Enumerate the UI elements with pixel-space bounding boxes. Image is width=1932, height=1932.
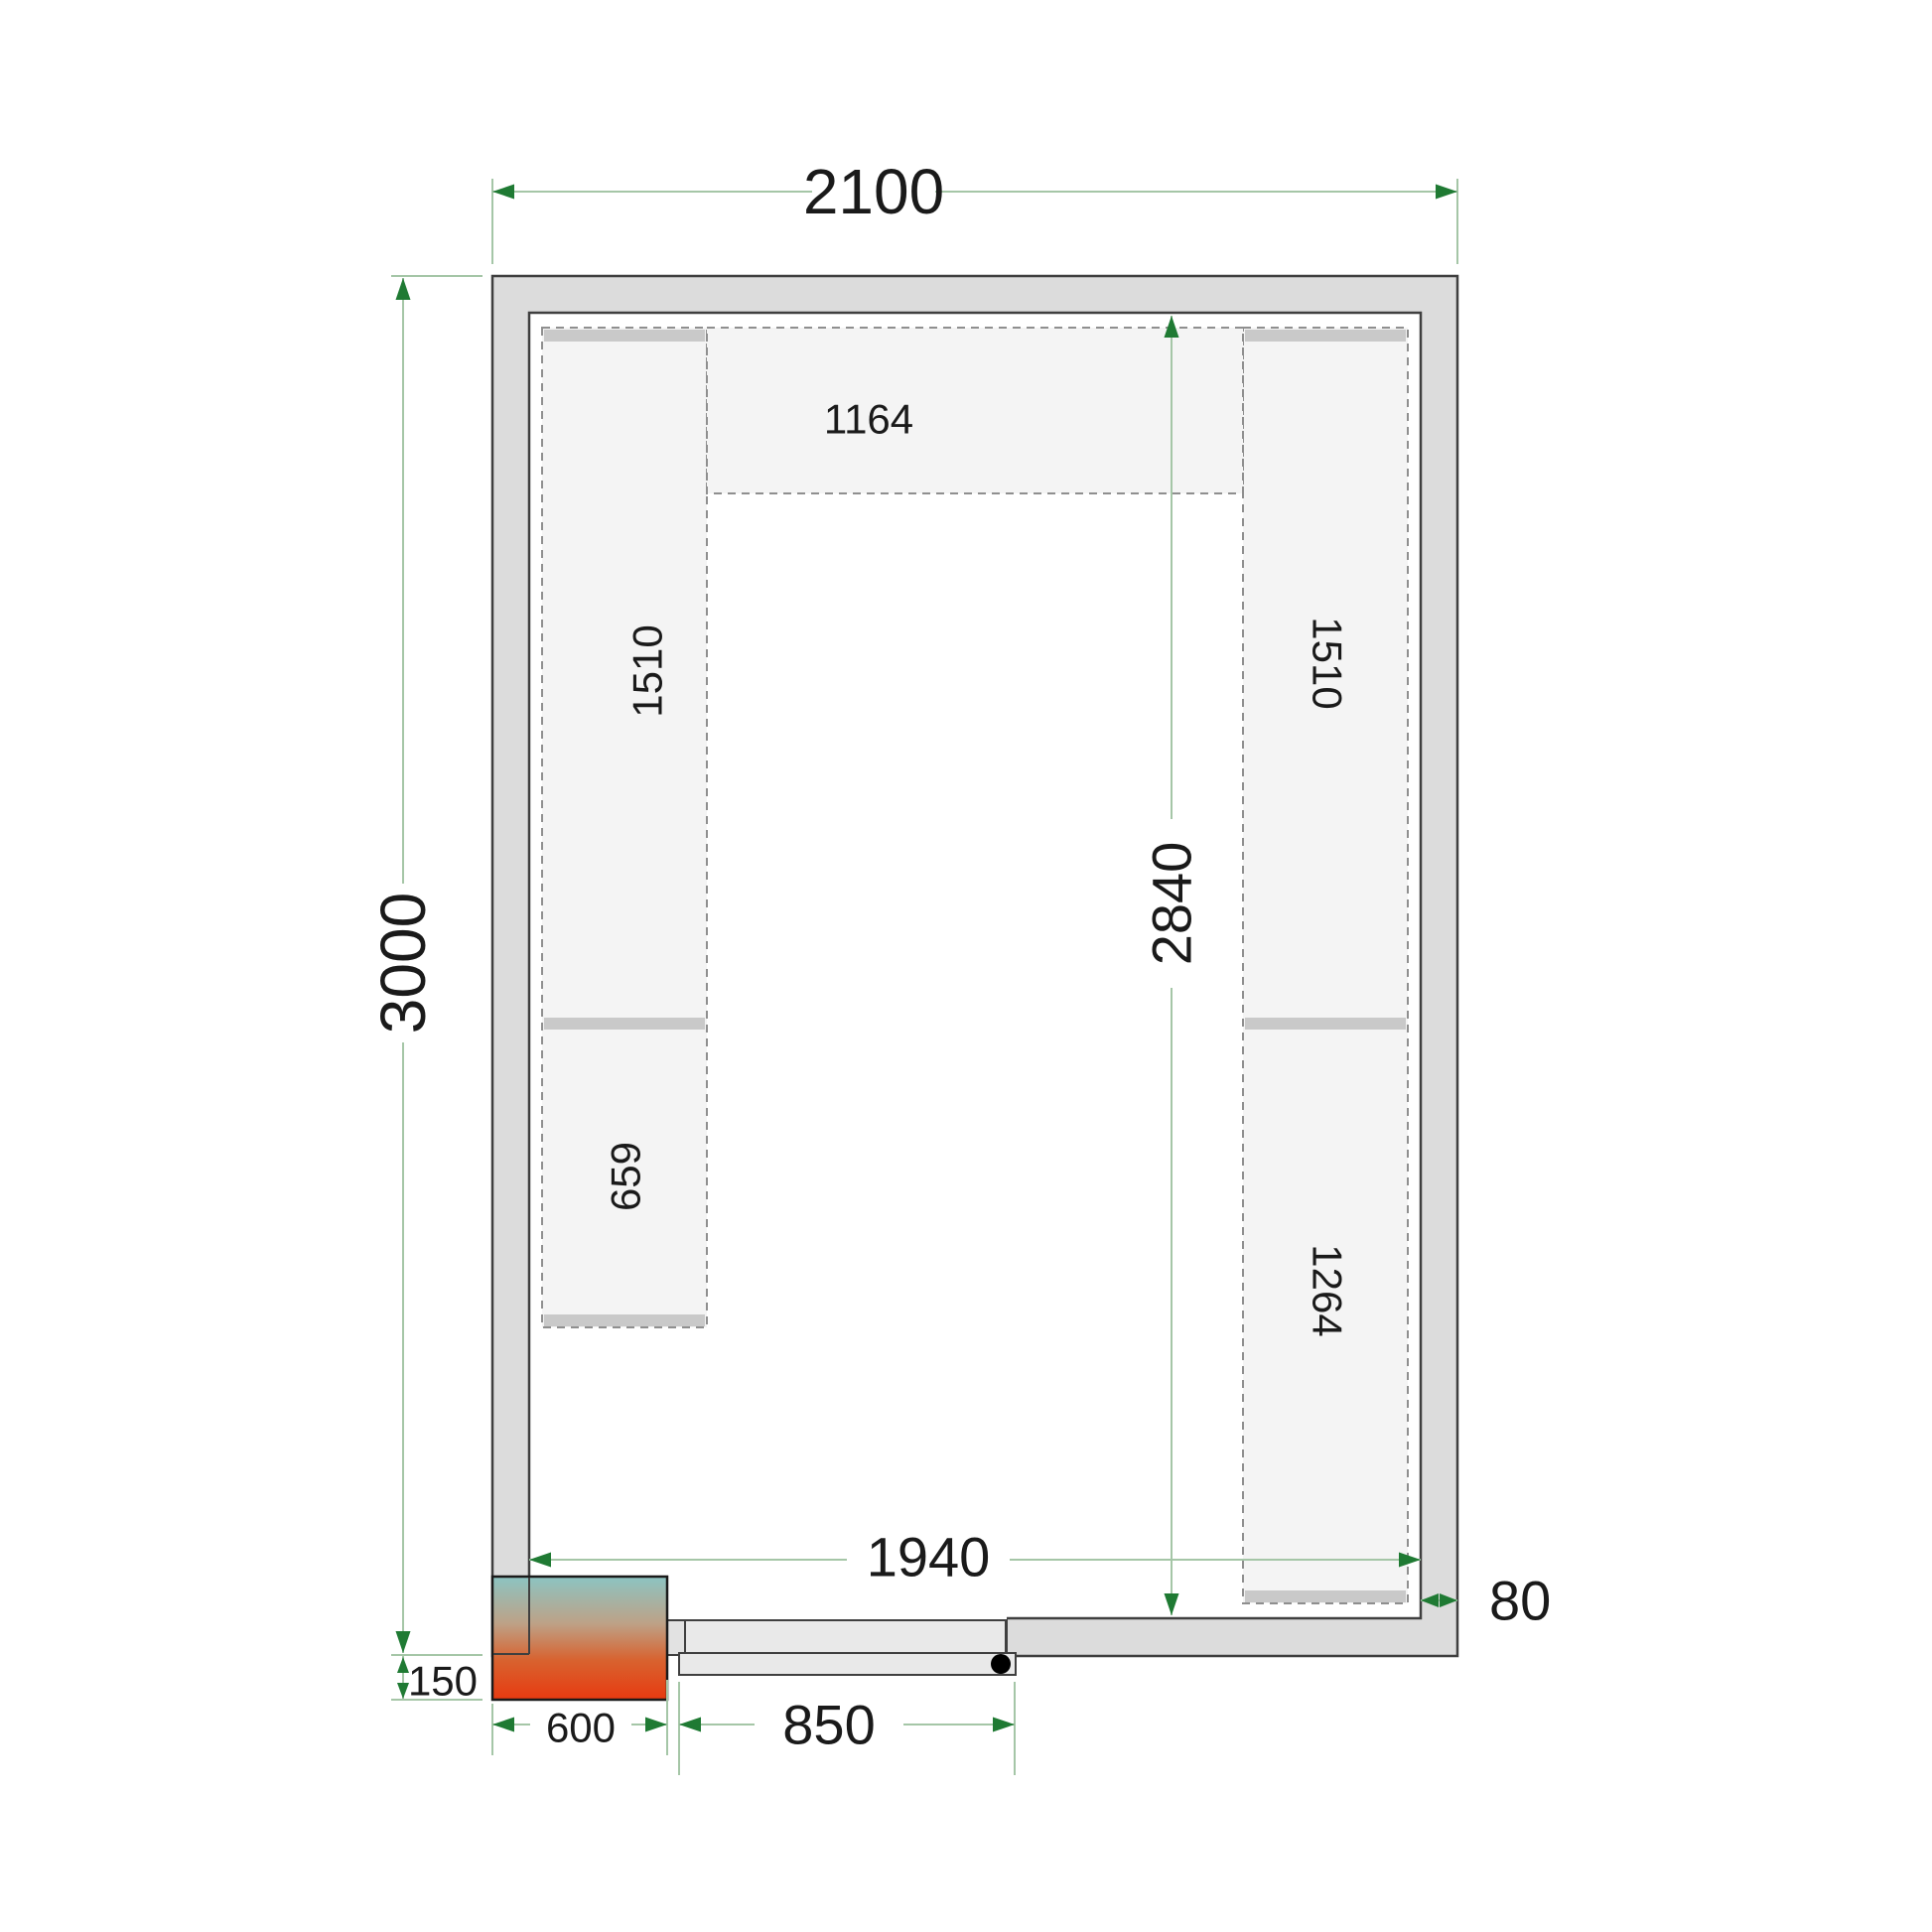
arrow-left-icon [679, 1718, 701, 1732]
shelf-left-upper-label: 1510 [624, 624, 671, 717]
shelf-left-top-cap [544, 330, 705, 342]
arrow-left-icon [492, 185, 514, 200]
cooling-unit [492, 1577, 667, 1700]
shelf-left-bottom-cap [544, 1314, 705, 1326]
dim-unit-offset-label: 150 [408, 1658, 478, 1705]
dim-unit-width-label: 600 [546, 1705, 616, 1751]
arrow-right-icon [1436, 185, 1457, 200]
floor-plan-canvas: 1164 1510 659 1510 1264 2100 [0, 0, 1932, 1932]
shelf-right [1243, 328, 1408, 1603]
door-leaf-flange [679, 1653, 1016, 1675]
dim-wall-thickness-label: 80 [1489, 1570, 1551, 1632]
arrow-down-icon [396, 1631, 411, 1653]
dim-inner-width-label: 1940 [867, 1526, 991, 1588]
floor-plan-drawing: 1164 1510 659 1510 1264 2100 [0, 0, 1932, 1932]
dim-inner-height-label: 2840 [1141, 842, 1203, 966]
shelf-right-bottom-cap [1245, 1590, 1406, 1602]
dim-outer-width-label: 2100 [803, 156, 944, 227]
shelf-top [707, 328, 1243, 493]
shelf-left-lower-label: 659 [603, 1142, 649, 1211]
door-left-jamb [667, 1620, 685, 1655]
arrow-left-icon [492, 1718, 514, 1732]
arrow-right-icon [993, 1718, 1015, 1732]
shelf-right-divider [1245, 1018, 1406, 1030]
shelf-top-label: 1164 [824, 396, 913, 443]
dim-outer-height-label: 3000 [367, 893, 439, 1034]
shelf-left-divider [544, 1018, 705, 1030]
door-leaf [685, 1620, 1006, 1655]
dim-door-width: 850 [679, 1694, 1015, 1756]
dim-outer-width: 2100 [492, 156, 1457, 227]
door-hinge-dot [991, 1654, 1011, 1674]
shelf-right-upper-label: 1510 [1305, 617, 1351, 709]
shelf-right-top-cap [1245, 330, 1406, 342]
dim-outer-height: 3000 [367, 278, 439, 1653]
dim-unit-offset: 150 [397, 1655, 478, 1705]
arrow-up-icon [396, 278, 411, 300]
arrow-right-icon [645, 1718, 667, 1732]
dim-unit-width: 600 [492, 1705, 667, 1751]
dim-door-width-label: 850 [782, 1694, 875, 1756]
shelf-right-lower-label: 1264 [1305, 1244, 1351, 1336]
